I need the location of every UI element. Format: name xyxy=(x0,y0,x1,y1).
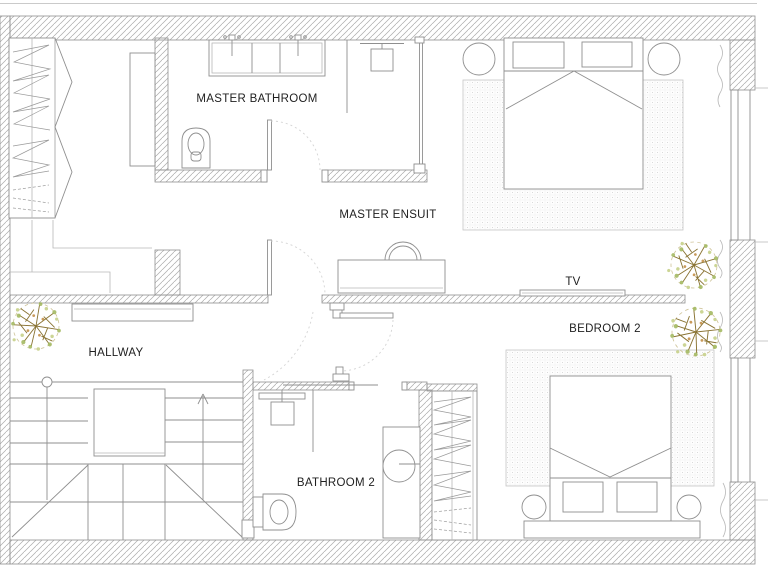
master-bed-symbol xyxy=(504,38,643,189)
bathroom-door xyxy=(261,120,328,182)
tv-symbol xyxy=(520,290,625,296)
pedestal-basin-symbol xyxy=(383,427,420,538)
shower2-symbol xyxy=(259,367,378,452)
ensuite-door xyxy=(264,240,325,380)
pillow-icon xyxy=(582,42,632,67)
toilet-symbol xyxy=(182,128,210,168)
room-label-master-bathroom: MASTER BATHROOM xyxy=(196,93,317,105)
shower-head-icon xyxy=(271,402,294,425)
dressing-steps xyxy=(10,220,152,293)
hallway-console-symbol xyxy=(72,304,193,321)
room-label-bedroom-2: BEDROOM 2 xyxy=(569,323,641,335)
nightstand-symbol xyxy=(522,495,546,519)
curtain-lines xyxy=(718,45,726,537)
toilet2-symbol xyxy=(253,494,296,530)
pillow-icon xyxy=(513,42,564,68)
bifold-door-symbol xyxy=(55,38,72,218)
up-arrow-icon xyxy=(198,394,208,500)
shower-head-symbol xyxy=(360,44,404,72)
nightstand-symbol xyxy=(648,43,680,75)
floor-plan: MASTER BATHROOM MASTER ENSUIT TV BEDROOM… xyxy=(0,0,768,576)
wardrobe2-symbol xyxy=(432,391,477,540)
room-label-master-ensuite: MASTER ENSUIT xyxy=(339,209,436,221)
wardrobe-symbol xyxy=(9,38,72,218)
tall-cabinet-symbol xyxy=(130,53,155,166)
room-label-bathroom-2: BATHROOM 2 xyxy=(297,477,375,489)
plant-icon xyxy=(662,234,725,296)
pillow-icon xyxy=(617,482,657,512)
nightstand-symbol xyxy=(463,43,495,75)
room-label-hallway: HALLWAY xyxy=(89,347,144,359)
newel-post-icon xyxy=(42,377,52,387)
plant-icon xyxy=(11,302,61,350)
window-master-bedroom xyxy=(731,88,768,242)
label-tv: TV xyxy=(565,276,580,288)
dresser-with-mirror-symbol xyxy=(338,242,445,293)
stair-void xyxy=(94,389,165,456)
floor-plan-drawing xyxy=(0,0,768,576)
staircase-symbol xyxy=(10,377,254,540)
window-bedroom-2 xyxy=(731,341,768,500)
vanity-double-sink-symbol xyxy=(209,35,325,76)
nightstand-symbol xyxy=(677,495,701,519)
pillow-icon xyxy=(563,482,603,512)
headboard xyxy=(524,521,700,538)
